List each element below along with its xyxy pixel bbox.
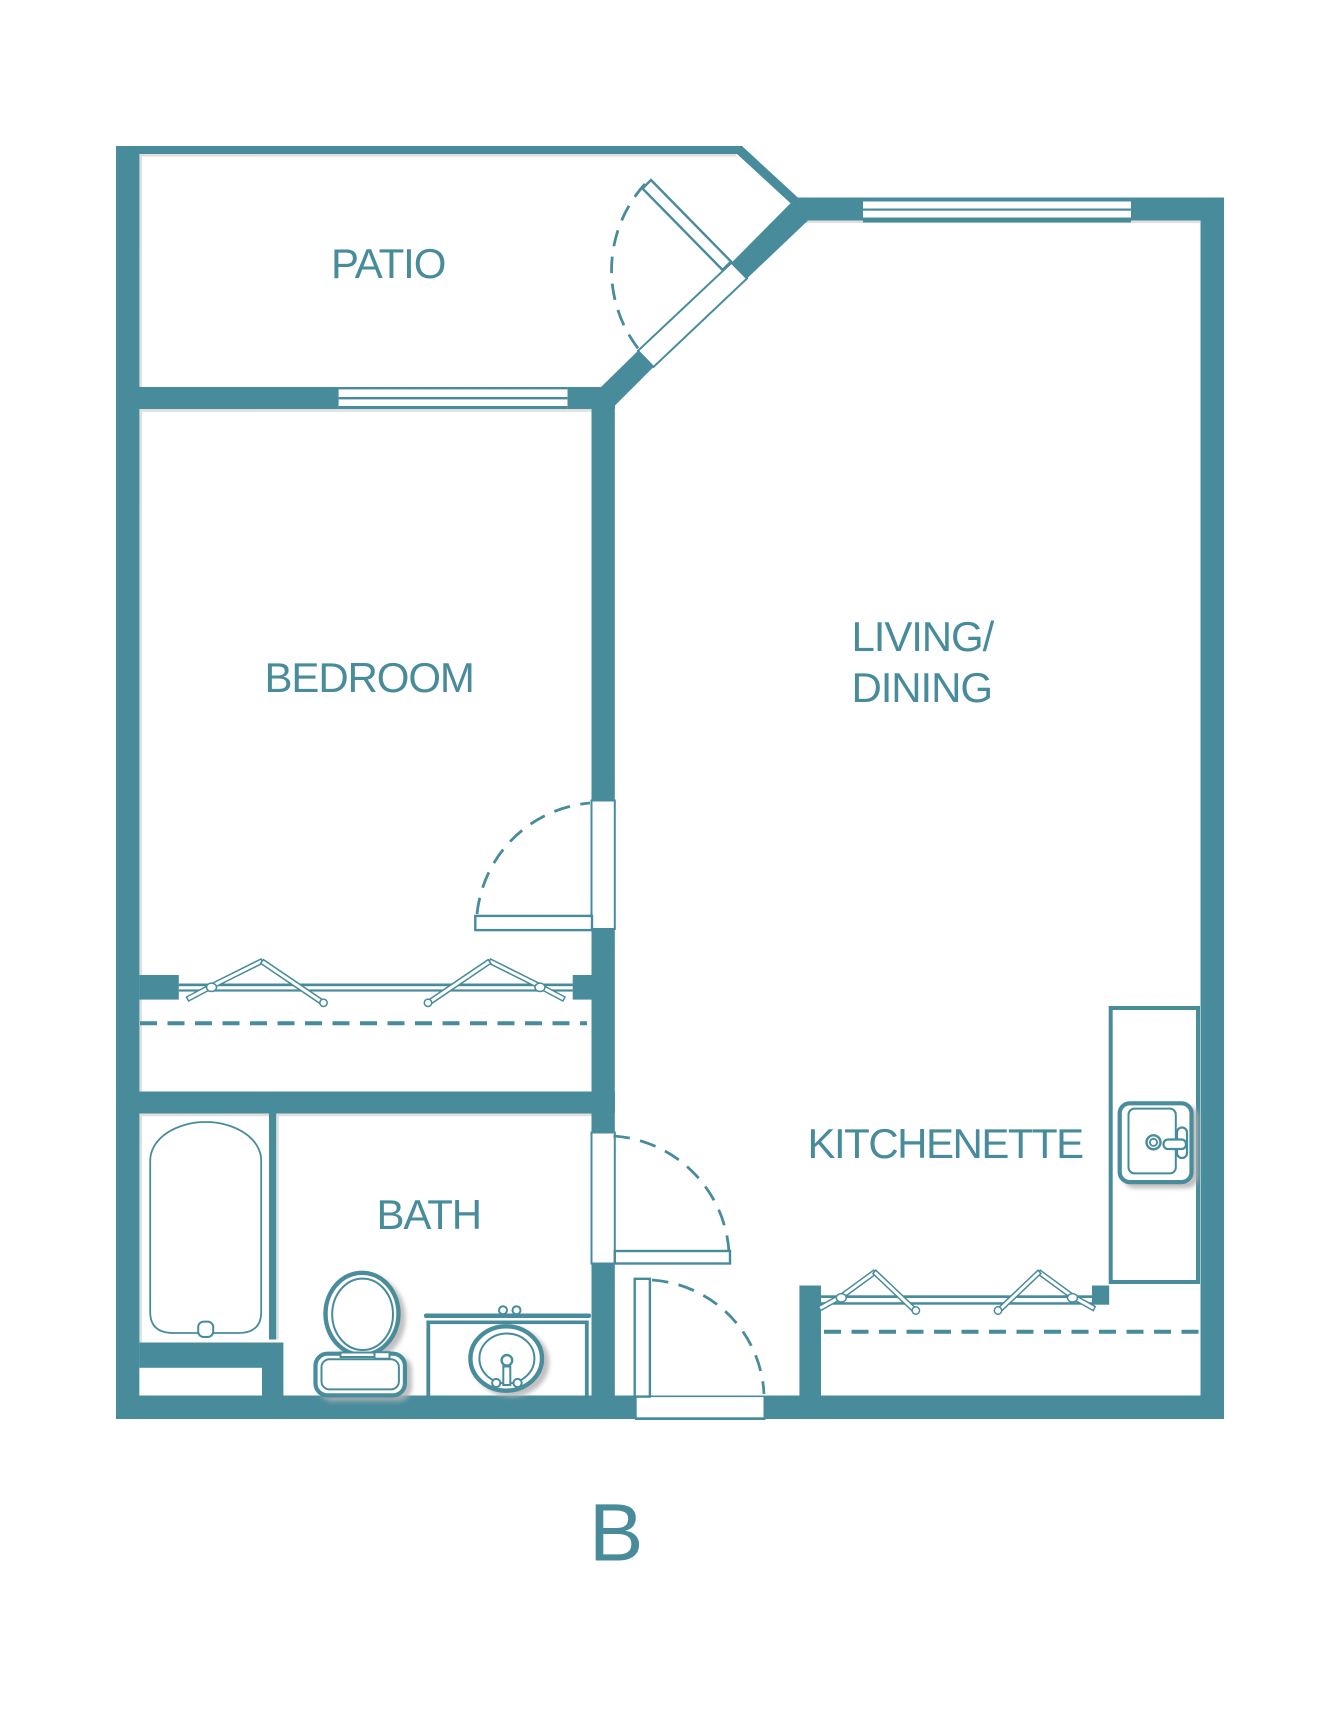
svg-text:LIVING/: LIVING/ (852, 613, 995, 660)
svg-text:KITCHENETTE: KITCHENETTE (808, 1120, 1084, 1167)
svg-text:BATH: BATH (377, 1191, 482, 1238)
svg-text:B: B (589, 1488, 643, 1579)
svg-text:BEDROOM: BEDROOM (265, 654, 474, 701)
svg-text:PATIO: PATIO (331, 240, 445, 287)
svg-text:DINING: DINING (852, 664, 992, 711)
